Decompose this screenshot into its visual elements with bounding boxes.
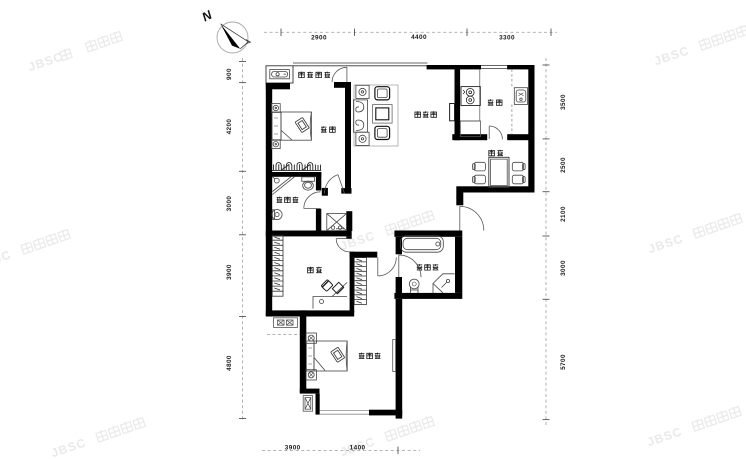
svg-text:3900: 3900 (226, 264, 233, 280)
svg-text:3900: 3900 (285, 444, 301, 451)
svg-text:2100: 2100 (560, 206, 567, 222)
svg-text:2900: 2900 (311, 35, 327, 42)
svg-text:1400: 1400 (350, 444, 366, 451)
svg-text:4800: 4800 (226, 355, 233, 371)
svg-text:4400: 4400 (411, 34, 427, 41)
svg-text:3000: 3000 (226, 196, 233, 212)
svg-text:3500: 3500 (560, 94, 567, 110)
svg-text:3000: 3000 (560, 260, 567, 276)
svg-text:4200: 4200 (226, 119, 233, 135)
svg-text:900: 900 (226, 68, 233, 80)
svg-text:5700: 5700 (560, 354, 567, 370)
svg-text:2500: 2500 (560, 157, 567, 173)
svg-text:3300: 3300 (499, 35, 515, 42)
